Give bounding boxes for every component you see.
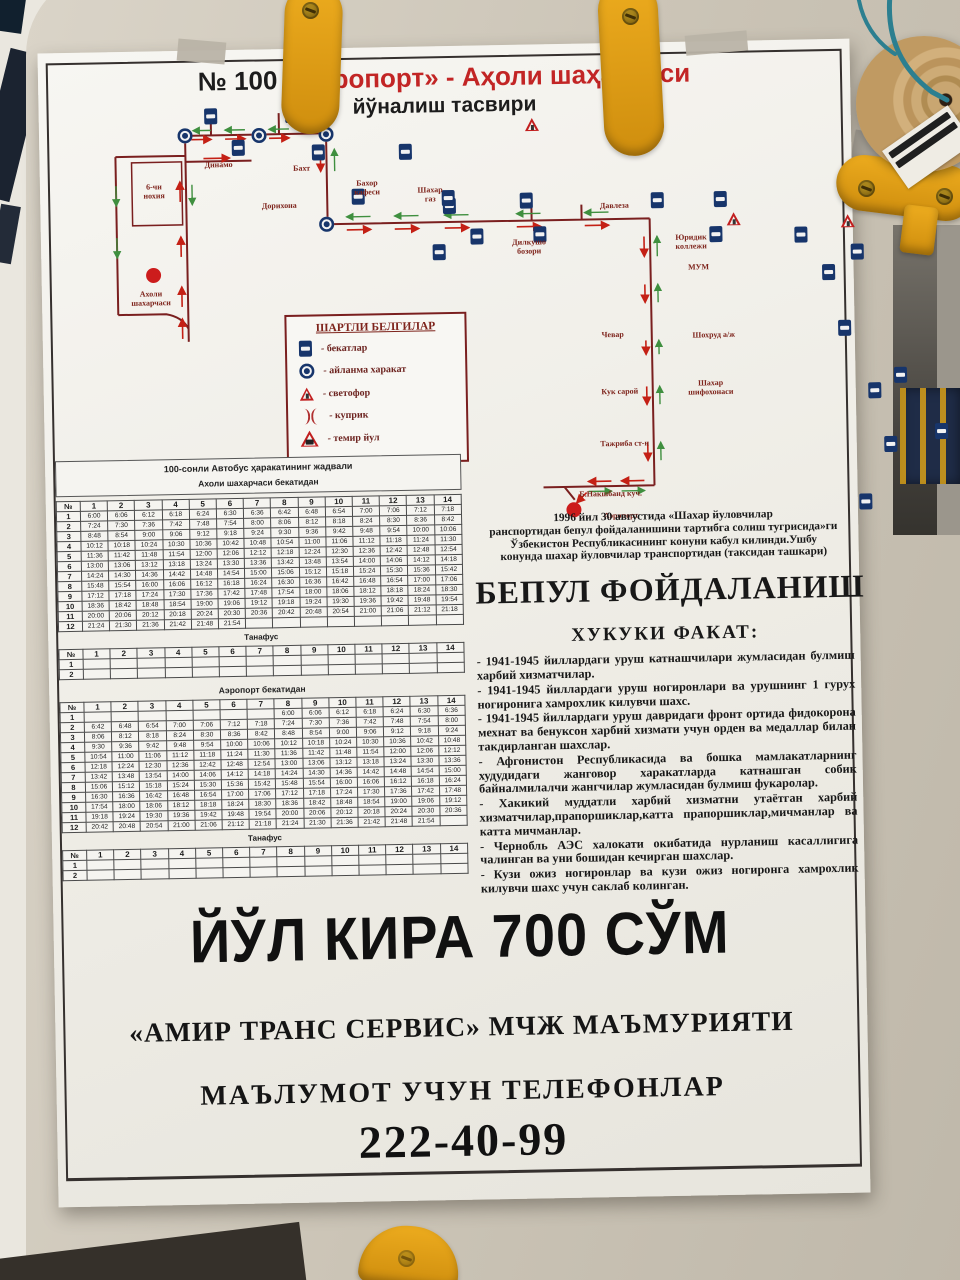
time-cell: 9:24 (438, 725, 466, 735)
time-cell: 7:18 (247, 719, 274, 729)
row-number: 4 (57, 541, 81, 551)
time-cell: 12:48 (408, 545, 435, 555)
time-cell: 17:30 (163, 589, 190, 599)
time-cell: 10:18 (302, 738, 329, 748)
time-cell (413, 864, 440, 874)
rights-bullet: - Хакикий муддатли харбий хизматни утаёт… (479, 791, 858, 839)
map-label: Шохруд а/ж (692, 331, 735, 340)
time-cell: 6:00 (274, 708, 301, 718)
time-cell (110, 668, 137, 678)
time-cell: 14:30 (109, 570, 136, 580)
time-cell: 8:24 (353, 516, 380, 526)
time-cell (440, 853, 468, 863)
time-cell (386, 864, 413, 874)
time-cell: 11:48 (330, 747, 357, 757)
bus-interior-photo: № 100 «Аэропорт» - Аҳоли шаҳарчаси йўнал… (0, 0, 960, 1280)
time-cell: 19:18 (86, 812, 113, 822)
time-cell (304, 856, 331, 866)
bus-column-header: 5 (192, 647, 219, 657)
time-cell: 21:42 (358, 817, 385, 827)
bus-column-header: 4 (168, 848, 195, 858)
bus-stop-icon (794, 226, 807, 242)
bus-column-header: 14 (440, 843, 468, 853)
bus-column-header: 2 (107, 500, 134, 510)
time-cell: 7:36 (329, 717, 356, 727)
time-cell: 9:30 (271, 527, 298, 537)
bus-column-header: 5 (193, 700, 220, 710)
timetable-2: №123456789101112131416:006:066:126:186:2… (59, 695, 467, 833)
time-cell: 14:12 (221, 769, 248, 779)
time-cell: 10:54 (85, 752, 112, 762)
time-cell: 20:12 (137, 610, 164, 620)
time-cell (193, 710, 220, 720)
bus-column-header: 1 (83, 649, 110, 659)
time-cell: 16:54 (381, 575, 408, 585)
row-number: 3 (57, 531, 81, 541)
bus-column-header: 10 (328, 644, 355, 654)
time-cell (300, 617, 327, 627)
time-cell: 13:06 (109, 560, 136, 570)
time-cell (332, 865, 359, 875)
map-label: Дилкушобозори (512, 238, 546, 256)
time-cell (328, 654, 355, 664)
legend-item: - темир йул (300, 427, 466, 447)
time-cell: 14:54 (217, 568, 244, 578)
time-cell: 18:42 (109, 600, 136, 610)
time-cell: 21:00 (168, 820, 195, 830)
tape (177, 39, 227, 65)
time-cell (359, 865, 386, 875)
time-cell: 18:12 (167, 800, 194, 810)
time-cell: 13:42 (85, 772, 112, 782)
bus-column-header: 11 (359, 845, 386, 855)
time-cell: 18:24 (222, 799, 249, 809)
bus-stop-icon (894, 367, 907, 383)
time-cell: 6:54 (139, 721, 166, 731)
time-cell: 19:54 (436, 594, 464, 604)
time-cell: 20:54 (140, 821, 167, 831)
time-cell: 20:12 (331, 807, 358, 817)
legend-label: - темир йул (327, 432, 379, 444)
bus-stop-icon (232, 140, 245, 156)
time-cell: 7:48 (189, 519, 216, 529)
time-cell: 11:12 (353, 536, 380, 546)
time-cell (138, 658, 165, 668)
bus-stop-icon (859, 493, 872, 509)
time-cell: 6:48 (298, 507, 325, 517)
time-cell (246, 618, 273, 628)
bus-column-header: 3 (135, 500, 162, 510)
time-cell: 16:18 (218, 578, 245, 588)
roundabout-icon (299, 364, 314, 379)
time-cell: 16:42 (326, 576, 353, 586)
bus-column-header: 8 (277, 846, 304, 856)
route-poster: № 100 «Аэропорт» - Аҳоли шаҳарчаси йўнал… (37, 39, 870, 1208)
rights-list: - 1941-1945 йиллардаги уруш катнашчилари… (477, 649, 859, 896)
row-number: 10 (62, 802, 86, 812)
time-cell (332, 855, 359, 865)
time-cell: 16:24 (439, 775, 467, 785)
time-cell: 16:00 (330, 777, 357, 787)
time-cell (196, 868, 223, 878)
traffic-light-icon (841, 214, 855, 227)
time-cell: 6:36 (244, 508, 271, 518)
time-cell: 10:42 (411, 736, 438, 746)
rights-bullet: - Афгонистон Республикасида ва бошка мам… (478, 748, 857, 796)
time-cell (437, 662, 465, 672)
time-cell: 17:00 (222, 789, 249, 799)
time-cell: 19:36 (168, 810, 195, 820)
time-cell: 10:36 (384, 736, 411, 746)
screw-icon (302, 2, 319, 19)
time-cell: 21:30 (304, 818, 331, 828)
time-cell: 18:24 (408, 585, 435, 595)
time-cell: 15:42 (249, 779, 276, 789)
time-cell: 14:36 (136, 570, 163, 580)
time-cell: 15:06 (272, 567, 299, 577)
time-cell: 19:00 (191, 599, 218, 609)
time-cell: 14:06 (380, 555, 407, 565)
time-cell: 17:48 (245, 588, 272, 598)
time-cell: 10:12 (275, 738, 302, 748)
time-cell: 15:36 (221, 779, 248, 789)
map-label: Давлеза (600, 202, 629, 211)
time-cell: 7:54 (411, 716, 438, 726)
time-cell: 20:30 (412, 806, 439, 816)
time-cell: 12:54 (248, 759, 275, 769)
map-label: Кук сарой (601, 388, 638, 397)
time-cell: 6:18 (356, 707, 383, 717)
time-cell: 21:00 (354, 606, 381, 616)
row-number: 10 (58, 601, 82, 611)
time-cell: 11:18 (380, 535, 407, 545)
bus-column-header: 7 (250, 847, 277, 857)
time-cell: 7:54 (217, 518, 244, 528)
time-cell: 13:30 (411, 756, 438, 766)
time-cell (223, 857, 250, 867)
time-cell: 21:24 (82, 621, 109, 631)
time-cell: 18:18 (195, 800, 222, 810)
time-cell: 10:54 (271, 537, 298, 547)
bus-column-header: 8 (271, 497, 298, 507)
time-cell: 18:54 (358, 797, 385, 807)
time-cell: 14:42 (357, 767, 384, 777)
time-cell: 8:36 (407, 515, 434, 525)
time-cell: 16:36 (113, 791, 140, 801)
time-cell: 15:54 (303, 778, 330, 788)
time-cell: 15:48 (276, 778, 303, 788)
time-cell: 11:24 (407, 535, 434, 545)
bus-column-header: 13 (409, 643, 436, 653)
time-cell: 8:12 (298, 517, 325, 527)
time-cell (355, 654, 382, 664)
time-cell: 14:00 (167, 770, 194, 780)
time-cell: 8:00 (438, 715, 466, 725)
bus-stop-icon (935, 423, 948, 439)
law-intro: 1996 йил 30 августида «Шахар йуловчиларр… (474, 507, 853, 565)
time-cell: 9:54 (193, 740, 220, 750)
timetable-1: №123456789101112131416:006:066:126:186:2… (56, 494, 464, 632)
time-cell (386, 854, 413, 864)
time-cell: 15:42 (435, 564, 463, 574)
time-cell (196, 858, 223, 868)
time-cell: 7:00 (352, 506, 379, 516)
rights-column: 1996 йил 30 августида «Шахар йуловчиларр… (474, 507, 859, 898)
time-cell: 13:30 (217, 558, 244, 568)
time-cell: 19:48 (222, 809, 249, 819)
screw-icon (398, 1250, 415, 1267)
time-cell: 16:24 (245, 578, 272, 588)
time-cell: 9:54 (380, 525, 407, 535)
time-cell (247, 709, 274, 719)
time-cell: 7:06 (193, 720, 220, 730)
row-number: 1 (60, 712, 84, 722)
time-cell: 10:48 (244, 538, 271, 548)
time-cell: 11:00 (299, 537, 326, 547)
bus-column-header: 8 (274, 698, 301, 708)
time-cell: 20:48 (113, 821, 140, 831)
row-number: 6 (57, 561, 81, 571)
window-strip (937, 225, 960, 535)
time-cell: 6:42 (271, 507, 298, 517)
time-cell (169, 868, 196, 878)
map-label: Ахолишахарчаси (131, 290, 171, 308)
time-cell: 8:06 (271, 517, 298, 527)
time-cell: 7:12 (407, 505, 434, 515)
row-number: 11 (58, 611, 82, 621)
time-cell: 16:12 (190, 579, 217, 589)
bus-column-header: 6 (220, 699, 247, 709)
time-cell: 9:06 (356, 727, 383, 737)
time-cell: 12:18 (85, 762, 112, 772)
time-cell (192, 657, 219, 667)
time-cell: 9:00 (135, 530, 162, 540)
time-cell: 20:00 (276, 808, 303, 818)
time-cell (250, 867, 277, 877)
time-cell (111, 711, 138, 721)
screw-icon (622, 8, 639, 25)
row-number: 2 (57, 521, 81, 531)
bus-column-header: 9 (304, 846, 331, 856)
time-cell: 12:00 (384, 746, 411, 756)
time-cell: 6:06 (108, 510, 135, 520)
row-number: 4 (61, 742, 85, 752)
time-cell: 21:06 (195, 820, 222, 830)
bus-column-header: 8 (273, 645, 300, 655)
time-cell: 11:54 (163, 549, 190, 559)
time-cell: 14:24 (276, 768, 303, 778)
time-cell: 16:12 (385, 776, 412, 786)
time-cell: 15:24 (353, 566, 380, 576)
time-cell: 14:30 (303, 768, 330, 778)
traffic-light-icon (300, 387, 314, 400)
time-cell: 18:00 (299, 587, 326, 597)
screw-icon (858, 180, 875, 197)
time-cell: 12:24 (112, 761, 139, 771)
time-cell: 10:48 (438, 735, 466, 745)
time-cell: 17:18 (303, 788, 330, 798)
bus-column-header: 3 (137, 648, 164, 658)
time-cell (165, 657, 192, 667)
time-cell: 10:06 (434, 524, 462, 534)
time-cell: 17:06 (435, 574, 463, 584)
time-cell: 9:18 (217, 528, 244, 538)
time-cell: 19:00 (385, 796, 412, 806)
time-cell: 13:12 (136, 560, 163, 570)
time-cell: 6:12 (329, 707, 356, 717)
bus-stop-icon (851, 243, 864, 259)
time-cell: 19:42 (381, 595, 408, 605)
row-number: 1 (59, 659, 83, 669)
time-cell: 10:12 (81, 541, 108, 551)
time-cell: 19:24 (113, 811, 140, 821)
time-cell: 17:54 (86, 802, 113, 812)
time-cell: 16:18 (412, 776, 439, 786)
time-cell: 7:24 (275, 718, 302, 728)
time-cell: 14:24 (81, 571, 108, 581)
time-cell (141, 859, 168, 869)
yellow-tab (280, 0, 343, 135)
rights-heading: ХУКУКИ ФАКАТ: (476, 620, 854, 649)
time-cell: 13:42 (272, 557, 299, 567)
traffic-light-icon (727, 212, 741, 225)
row-number: 12 (62, 822, 86, 832)
time-cell: 8:48 (275, 728, 302, 738)
time-cell: 13:18 (163, 559, 190, 569)
bus-column-header: 2 (114, 849, 141, 859)
legend-items: - бекатлар- айланма харакат- светофор- к… (287, 337, 467, 447)
fare-text: ЙЎЛ КИРА 700 СЎМ (53, 894, 866, 979)
time-cell: 21:54 (412, 816, 439, 826)
time-cell (301, 655, 328, 665)
row-number: 2 (59, 669, 83, 679)
time-cell: 10:00 (407, 525, 434, 535)
bus-column-header: 12 (386, 844, 413, 854)
time-cell (110, 658, 137, 668)
time-cell: 8:42 (248, 729, 275, 739)
time-cell: 11:36 (275, 748, 302, 758)
time-cell: 18:36 (276, 798, 303, 808)
map-label: Бахоркафеси (354, 179, 380, 196)
time-cell: 13:48 (299, 557, 326, 567)
time-cell: 9:00 (329, 727, 356, 737)
time-cell: 15:12 (113, 781, 140, 791)
time-cell: 12:12 (244, 548, 271, 558)
handle-strap (899, 204, 939, 256)
rights-bullet: - 1941-1945 йиллардаги уруш давридаги фр… (478, 706, 857, 754)
bus-column-header: 9 (301, 645, 328, 655)
time-cell: 21:48 (191, 619, 218, 629)
time-cell: 19:42 (195, 810, 222, 820)
map-label: 6-чинохия (143, 183, 165, 200)
time-cell (138, 711, 165, 721)
time-cell: 9:42 (139, 741, 166, 751)
legend-item: - светофор (300, 382, 466, 402)
row-number: 5 (61, 752, 85, 762)
time-cell: 12:12 (438, 745, 466, 755)
time-cell (83, 659, 110, 669)
bus-column-header: 14 (437, 695, 465, 705)
time-cell (166, 710, 193, 720)
time-cell: 17:42 (218, 588, 245, 598)
bus-stop-icon (312, 144, 325, 160)
map-label: Дорихона (262, 202, 297, 211)
time-cell: 19:12 (439, 795, 467, 805)
time-cell: 12:36 (353, 546, 380, 556)
time-cell: 18:30 (435, 584, 463, 594)
time-cell: 9:48 (353, 526, 380, 536)
time-cell: 17:48 (439, 785, 467, 795)
bus-stop-icon (822, 264, 835, 280)
time-cell (168, 858, 195, 868)
bridge-icon (300, 408, 320, 424)
time-cell: 17:00 (408, 575, 435, 585)
row-number: 11 (62, 812, 86, 822)
time-cell: 16:54 (194, 790, 221, 800)
legend-label: - бекатлар (321, 342, 368, 354)
time-cell: 12:48 (221, 759, 248, 769)
bus-stop-icon (299, 341, 312, 357)
traffic-light-icon (525, 118, 539, 131)
time-cell: 20:24 (191, 609, 218, 619)
time-cell (219, 666, 246, 676)
time-cell: 9:30 (85, 742, 112, 752)
bus-column-header: 10 (331, 845, 358, 855)
bus-column-header: 11 (355, 644, 382, 654)
time-cell: 20:36 (245, 608, 272, 618)
row-number-header: № (56, 501, 80, 511)
timetable-title: 100-сонли Автобус ҳаракатининг жадвали (56, 459, 460, 476)
time-cell: 8:30 (193, 730, 220, 740)
time-cell: 12:24 (299, 547, 326, 557)
time-cell: 10:24 (329, 737, 356, 747)
time-cell (327, 616, 354, 626)
time-cell: 8:48 (81, 531, 108, 541)
row-number: 7 (61, 772, 85, 782)
time-cell: 12:42 (380, 545, 407, 555)
time-cell: 17:12 (82, 591, 109, 601)
time-cell: 16:06 (163, 579, 190, 589)
time-cell: 21:18 (249, 819, 276, 829)
bus-column-header: 12 (382, 643, 409, 653)
map-label: Юридикколлежи (675, 233, 707, 251)
time-cell: 20:18 (358, 807, 385, 817)
time-cell: 12:42 (194, 760, 221, 770)
bus-column-header: 7 (247, 699, 274, 709)
time-cell (250, 857, 277, 867)
time-cell: 15:12 (299, 567, 326, 577)
time-cell: 7:18 (434, 504, 462, 514)
pole-stripes (900, 388, 960, 484)
bus-column-header: 11 (356, 697, 383, 707)
time-cell: 15:18 (140, 781, 167, 791)
bus-column-header: 14 (434, 494, 462, 504)
bus-column-header: 13 (410, 696, 437, 706)
time-cell: 9:18 (411, 726, 438, 736)
bus-stop-icon (868, 382, 881, 398)
time-cell: 21:48 (385, 816, 412, 826)
map-label: Динамо (204, 161, 232, 170)
time-cell: 6:42 (84, 722, 111, 732)
time-cell: 16:30 (86, 792, 113, 802)
time-cell: 9:36 (298, 527, 325, 537)
map-legend: ШАРТЛИ БЕЛГИЛАР - бекатлар- айланма хара… (284, 312, 469, 465)
time-cell: 21:06 (381, 605, 408, 615)
bus-column-header: 6 (223, 847, 250, 857)
bus-column-header: 1 (87, 850, 114, 860)
time-cell: 11:42 (108, 550, 135, 560)
bus-column-header: 1 (84, 702, 111, 712)
